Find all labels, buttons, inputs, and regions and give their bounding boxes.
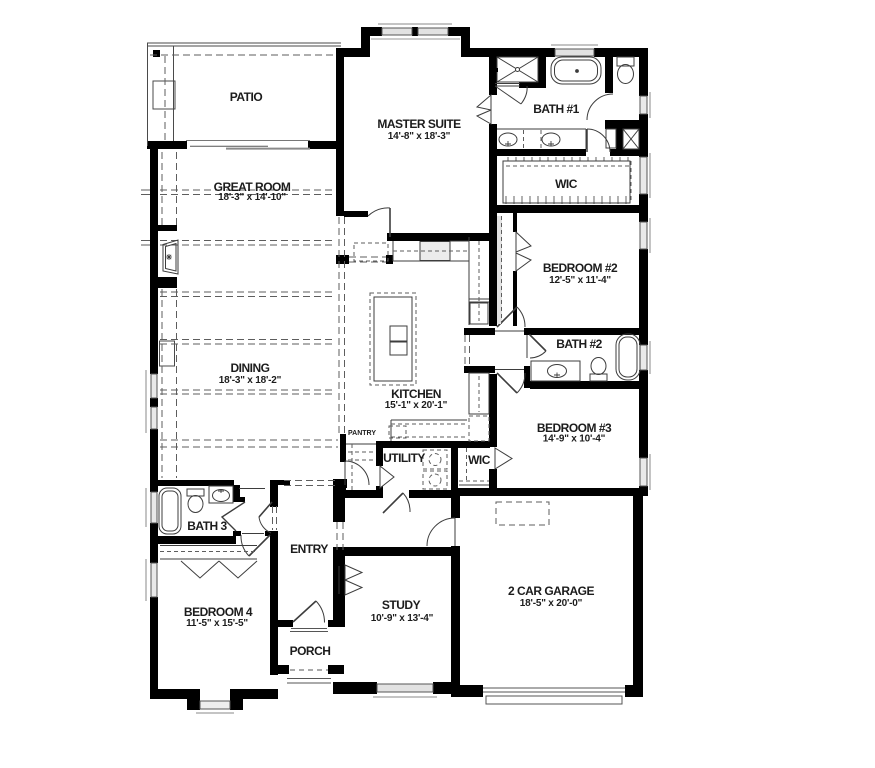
- svg-text:ENTRY: ENTRY: [290, 542, 328, 556]
- svg-text:14'-9" x 10'-4": 14'-9" x 10'-4": [543, 434, 606, 445]
- svg-text:PANTRY: PANTRY: [348, 430, 376, 437]
- svg-text:UTILITY: UTILITY: [383, 451, 425, 465]
- svg-text:BEDROOM 4: BEDROOM 4: [184, 605, 253, 619]
- svg-text:DINING: DINING: [231, 361, 270, 375]
- svg-text:2 CAR GARAGE: 2 CAR GARAGE: [508, 584, 595, 598]
- svg-text:11'-5" x 15'-5": 11'-5" x 15'-5": [186, 618, 248, 629]
- svg-text:STUDY: STUDY: [382, 598, 421, 612]
- svg-text:KITCHEN: KITCHEN: [391, 387, 441, 401]
- svg-text:PORCH: PORCH: [290, 644, 331, 658]
- svg-text:18'-5" x 20'-0": 18'-5" x 20'-0": [520, 598, 583, 609]
- svg-text:WIC: WIC: [468, 453, 491, 467]
- svg-text:BEDROOM #2: BEDROOM #2: [543, 261, 618, 275]
- svg-text:WIC: WIC: [555, 177, 578, 191]
- svg-text:15'-1" x 20'-1": 15'-1" x 20'-1": [385, 400, 448, 411]
- svg-text:MASTER SUITE: MASTER SUITE: [377, 117, 461, 131]
- svg-text:BATH 3: BATH 3: [187, 519, 227, 533]
- svg-text:14'-8" x 18'-3": 14'-8" x 18'-3": [388, 131, 451, 142]
- svg-text:BATH #1: BATH #1: [533, 102, 579, 116]
- svg-text:BATH #2: BATH #2: [556, 337, 602, 351]
- svg-text:18'-3" x 14'-10": 18'-3" x 14'-10": [218, 192, 286, 203]
- svg-text:12'-5" x 11'-4": 12'-5" x 11'-4": [549, 275, 611, 286]
- svg-text:PATIO: PATIO: [230, 90, 263, 104]
- svg-text:18'-3" x 18'-2": 18'-3" x 18'-2": [219, 375, 282, 386]
- svg-text:10'-9" x 13'-4": 10'-9" x 13'-4": [371, 613, 434, 624]
